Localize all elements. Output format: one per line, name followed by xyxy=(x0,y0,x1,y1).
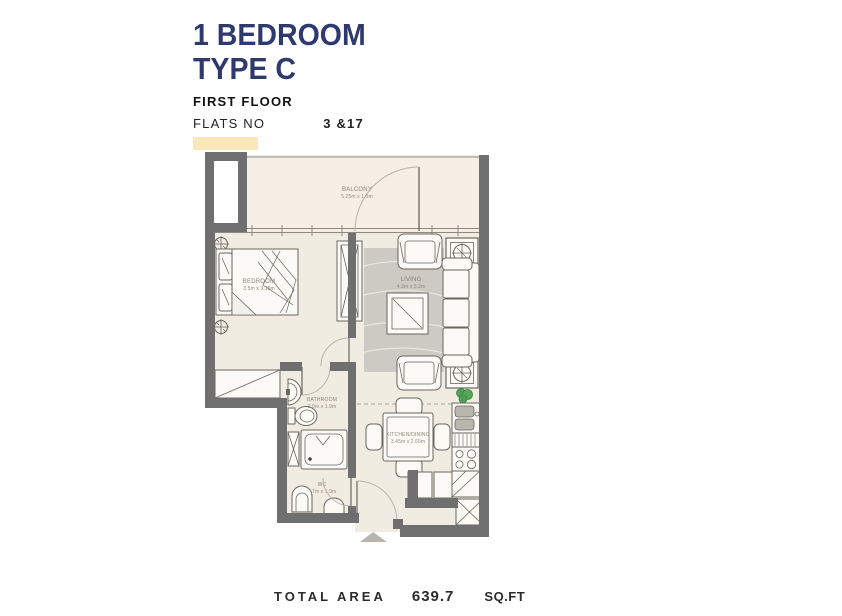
stove xyxy=(452,447,480,471)
dresser xyxy=(215,370,280,398)
room-label-bathroom: BATHROOM xyxy=(307,397,337,403)
armchair-bottom xyxy=(397,356,441,390)
floor-plan: BALCONY 5.25m x 1.5m xyxy=(0,0,842,616)
total-area-label: TOTAL AREA xyxy=(274,589,386,604)
room-dims-kitchen-dining: 3.45m x 2.65m xyxy=(391,439,425,445)
coffee-table xyxy=(387,293,428,334)
room-label-balcony: BALCONY xyxy=(342,187,372,193)
balcony: BALCONY 5.25m x 1.5m xyxy=(215,157,484,236)
total-area-unit: SQ.FT xyxy=(484,589,525,604)
bathtub xyxy=(301,430,347,469)
room-dims-bathroom: 2.0m x 1.9m xyxy=(308,404,337,410)
duct xyxy=(288,432,299,466)
room-label-wc: WC xyxy=(318,482,327,488)
drainer xyxy=(452,433,480,447)
room-label-bedroom: BEDROOM xyxy=(243,279,275,285)
wc-toilet xyxy=(292,486,312,512)
counter xyxy=(452,471,480,497)
entry-arrow-icon xyxy=(360,532,387,542)
room-label-living: LIVING xyxy=(401,277,422,283)
total-area-value: 639.7 xyxy=(412,588,455,605)
armchair-top xyxy=(398,234,442,269)
room-dims-bedroom: 3.5m x 3.15m xyxy=(243,286,275,292)
fridge xyxy=(456,499,483,525)
page: 1 BEDROOM TYPE C FIRST FLOOR FLATS NO 3 … xyxy=(0,0,842,616)
room-dims-balcony: 5.25m x 1.5m xyxy=(341,194,373,200)
total-area: TOTAL AREA 639.7 SQ.FT xyxy=(274,588,525,605)
room-dims-living: 4.3m x 3.2m xyxy=(397,284,426,290)
sofa xyxy=(442,258,479,367)
shaft xyxy=(214,161,238,223)
room-label-kitchen-dining: KITCHEN/DINING xyxy=(386,432,430,438)
kitchen-sink xyxy=(452,403,480,433)
